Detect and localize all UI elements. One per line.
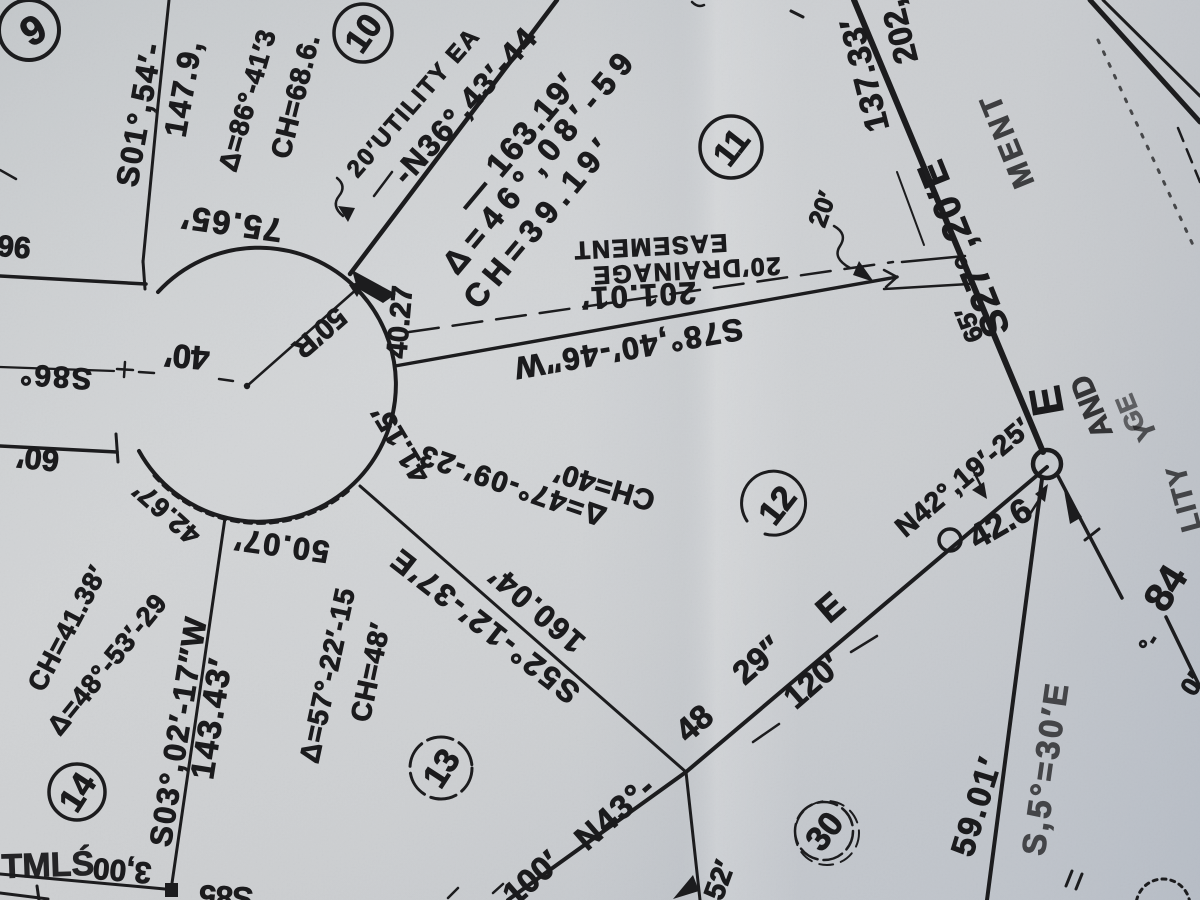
svg-text:40.27: 40.27 [381, 285, 419, 360]
svg-text:3,00: 3,00 [92, 851, 153, 889]
svg-text:S85: S85 [199, 878, 254, 900]
svg-text:60′: 60′ [15, 439, 60, 478]
svg-text:TMLŚ: TMLŚ [1, 845, 95, 886]
svg-text:S86°: S86° [17, 357, 93, 395]
svg-text:40′: 40′ [163, 337, 211, 378]
svg-text:96: 96 [0, 228, 32, 264]
